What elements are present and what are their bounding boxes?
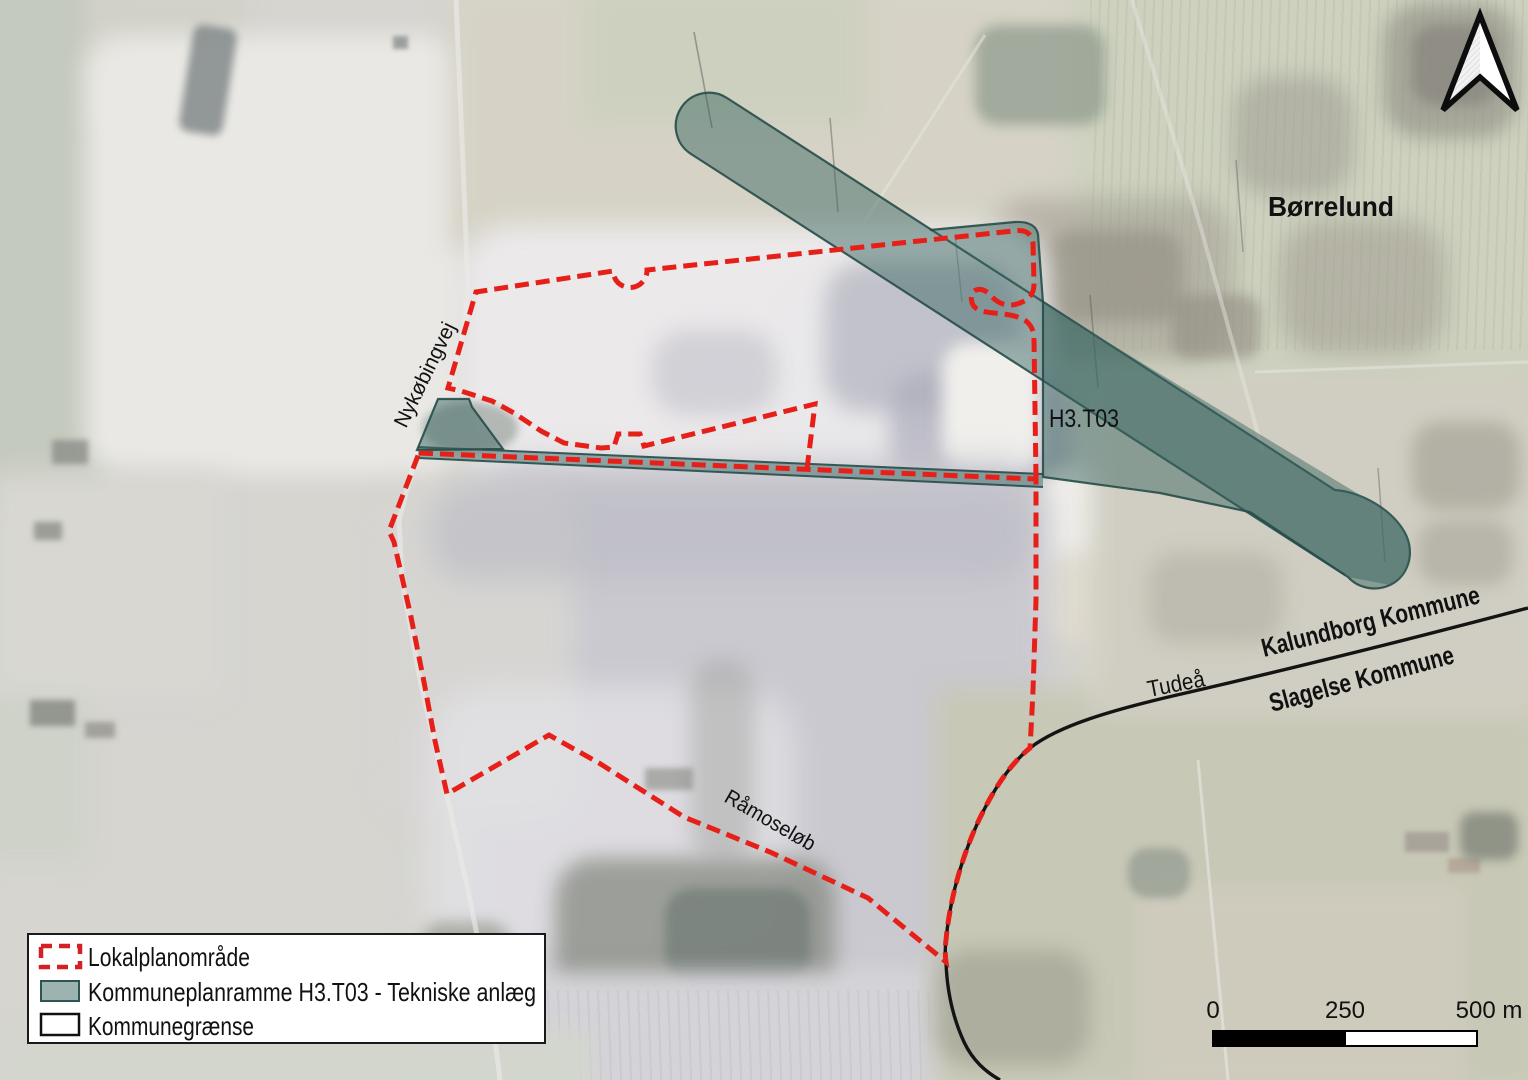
svg-text:Kommunegrænse: Kommunegrænse: [88, 1011, 254, 1041]
svg-text:500 m: 500 m: [1456, 997, 1523, 1024]
svg-text:Børrelund: Børrelund: [1268, 191, 1394, 222]
svg-text:Lokalplanområde: Lokalplanområde: [88, 942, 250, 972]
svg-text:H3.T03: H3.T03: [1049, 405, 1119, 433]
svg-text:Tudeå: Tudeå: [1145, 665, 1207, 702]
svg-text:Kommuneplanramme H3.T03 - Tekn: Kommuneplanramme H3.T03 - Tekniske anlæg: [88, 977, 536, 1007]
svg-text:0: 0: [1206, 997, 1219, 1024]
svg-text:Råmoseløb: Råmoseløb: [721, 785, 820, 855]
svg-text:250: 250: [1325, 997, 1365, 1024]
